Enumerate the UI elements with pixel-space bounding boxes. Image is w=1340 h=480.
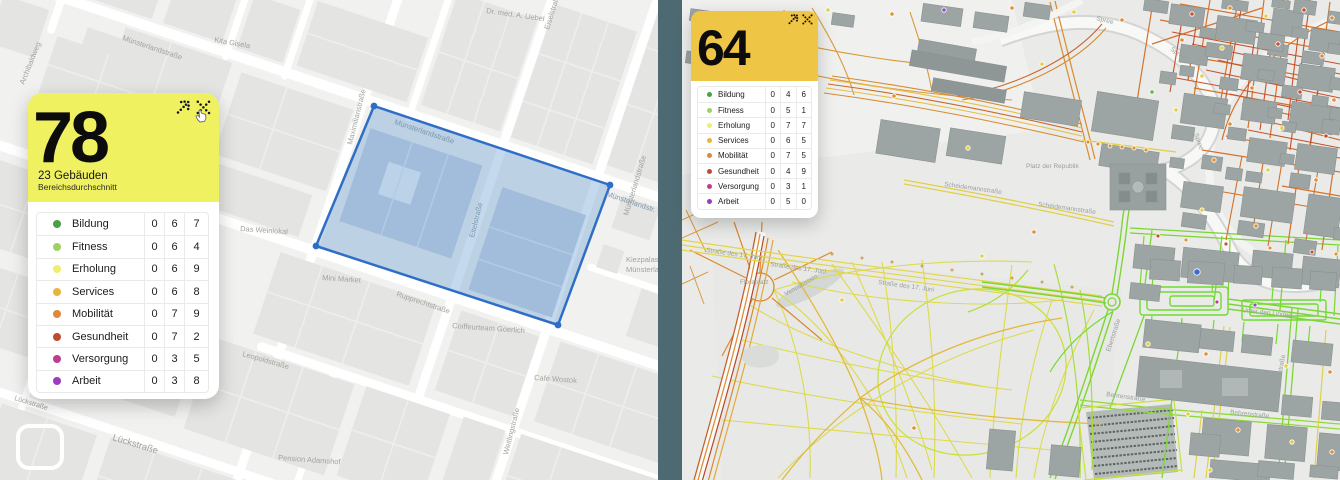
svg-text:Platz der Republik: Platz der Republik [1026,163,1079,170]
svg-text:Kiezpalast: Kiezpalast [626,255,658,264]
svg-text:Floraplatz: Floraplatz [740,279,769,286]
svg-text:Münsterland: Münsterland [626,265,658,274]
